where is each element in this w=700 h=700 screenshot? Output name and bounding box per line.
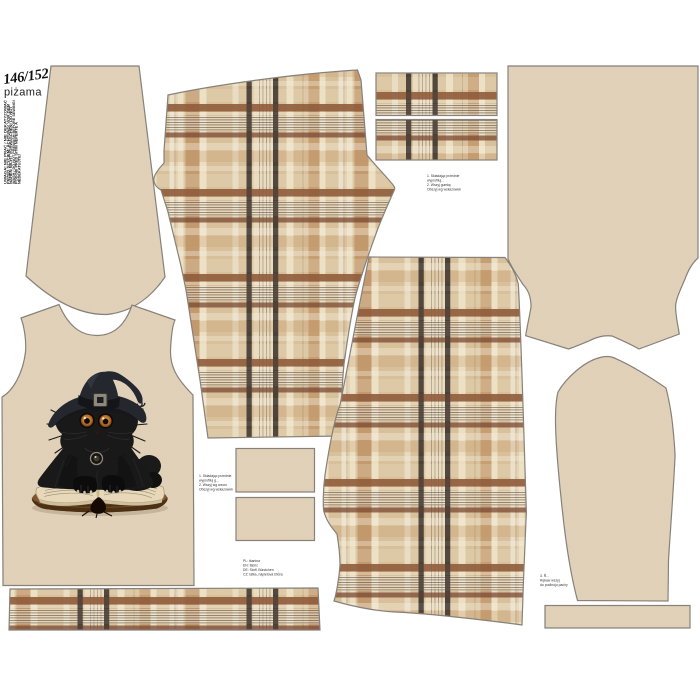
svg-text:CZ: látka, nápletová šňůra: CZ: látka, nápletová šňůra: [243, 573, 283, 577]
svg-text:EN: fabric: EN: fabric: [243, 564, 258, 568]
svg-text:1. Składając przednie: 1. Składając przednie: [199, 474, 232, 478]
svg-text:PL: tkanina: PL: tkanina: [243, 559, 260, 563]
svg-text:1. Składając przednie: 1. Składając przednie: [427, 174, 460, 178]
svg-text:DE: Stoff, Bündchen: DE: Stoff, Bündchen: [243, 568, 274, 572]
svg-text:wyprofiluj...: wyprofiluj...: [427, 179, 444, 183]
svg-text:wyprofiluj g...: wyprofiluj g...: [199, 479, 219, 483]
svg-text:do podkroju pachy: do podkroju pachy: [540, 583, 568, 587]
svg-text:piżama: piżama: [4, 87, 42, 99]
svg-text:Rękaw wszyj: Rękaw wszyj: [540, 579, 560, 583]
svg-text:Obszyj wg wskazówek: Obszyj wg wskazówek: [427, 188, 461, 192]
svg-text:2. Wszyj wg wzoru: 2. Wszyj wg wzoru: [199, 483, 227, 487]
svg-text:2. Wszyj gumkę: 2. Wszyj gumkę: [427, 183, 451, 187]
svg-text:NEDEKATUJTE!: NEDEKATUJTE!: [18, 154, 22, 184]
svg-text:3. Ř...: 3. Ř...: [540, 573, 549, 578]
svg-text:Obszyj wg wskazówek: Obszyj wg wskazówek: [199, 488, 233, 492]
